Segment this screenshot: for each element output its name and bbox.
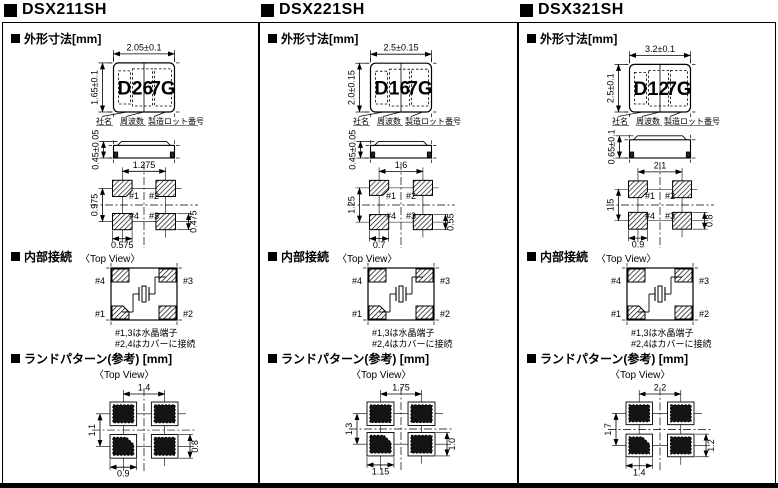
- side-terminal: [631, 152, 634, 158]
- thickness-dimension-label: 0.65±0.1: [607, 129, 617, 164]
- pad-pitch-x-label: 1.275: [133, 160, 156, 170]
- land-pitch-x-label: 1.4: [138, 383, 151, 393]
- panel-dsx221sh: DSX221SH D167G2.5±0.152.0±0.15社名周波数製造ロット…: [259, 0, 518, 488]
- land-pad: [154, 405, 175, 423]
- section-square-bullet-icon: [11, 252, 20, 261]
- internal-pad: [112, 269, 129, 282]
- pad-width-label: 0.7: [373, 240, 386, 250]
- pad-height-label: 0.475: [189, 210, 199, 233]
- pin-label: #3: [440, 276, 450, 286]
- marking-text: 7G: [666, 79, 691, 100]
- marking-legend-label: 製造ロット番号: [405, 116, 461, 126]
- terminal-pad: [413, 180, 432, 195]
- leader-line: [383, 112, 401, 117]
- pin-label: #1: [95, 309, 105, 319]
- section-square-bullet-icon: [11, 34, 20, 43]
- land-height-label: 0.8: [190, 440, 200, 453]
- marking-legend-label: 周波数: [636, 116, 660, 126]
- section-header-text: 内部接続: [281, 248, 329, 265]
- width-dimension-label: 2.05±0.1: [127, 42, 162, 52]
- leader-line: [102, 112, 127, 117]
- marking-legend-label: 社名: [612, 116, 628, 126]
- section-header-text: 外形寸法[mm]: [540, 30, 617, 47]
- terminal-pad: [673, 181, 692, 198]
- marking-text: 7G: [407, 79, 432, 100]
- terminal-pad: [673, 212, 692, 229]
- section-square-bullet-icon: [527, 34, 536, 43]
- section-header-outline: 外形寸法[mm]: [268, 30, 358, 47]
- pin-label: #2: [406, 191, 416, 201]
- pad-pitch-x-label: 2.1: [654, 160, 667, 170]
- section-square-bullet-icon: [527, 354, 536, 363]
- side-lid: [118, 141, 171, 145]
- pin-label: #2: [149, 191, 159, 201]
- section-header-land: ランドパターン(参考) [mm]: [268, 350, 429, 367]
- section-header-outline: 外形寸法[mm]: [527, 30, 617, 47]
- internal-pad: [628, 269, 645, 282]
- marking-legend-label: 社名: [353, 116, 369, 126]
- side-lid: [375, 141, 428, 145]
- marking-legend-label: 周波数: [120, 116, 144, 126]
- bottom-divider-bar: [0, 483, 778, 488]
- thickness-dimension-label: 0.45±0.05: [91, 130, 101, 170]
- leader-line: [618, 112, 643, 117]
- side-lid: [634, 136, 687, 140]
- crystal-symbol-body: [142, 286, 146, 302]
- side-terminal: [427, 152, 430, 158]
- side-body: [371, 145, 432, 158]
- section-header-internal: 内部接続: [11, 248, 72, 265]
- pin-label: #1: [611, 309, 621, 319]
- section-header-land: ランドパターン(参考) [mm]: [527, 350, 688, 367]
- pin-label: #1: [352, 309, 362, 319]
- internal-pad: [675, 269, 692, 282]
- land-pitch-x-label: 1.75: [392, 383, 410, 393]
- marking-legend-label: 周波数: [377, 116, 401, 126]
- side-terminal: [115, 152, 118, 158]
- top-view-label: 〈Top View〉: [337, 250, 397, 265]
- land-pitch-y-label: 1.7: [603, 423, 613, 436]
- pin-label: #1: [386, 191, 396, 201]
- pad-width-label: 0.9: [632, 240, 645, 250]
- pin-label: #4: [352, 276, 362, 286]
- section-header-text: ランドパターン(参考) [mm]: [281, 350, 429, 367]
- side-terminal: [372, 152, 375, 158]
- pin-label: #4: [95, 276, 105, 286]
- internal-pad: [416, 269, 433, 282]
- land-width-label: 0.9: [117, 469, 130, 479]
- section-square-bullet-icon: [268, 252, 277, 261]
- land-height-label: 1.0: [447, 438, 457, 451]
- pad-pitch-y-label: 1.25: [347, 196, 357, 214]
- land-pad: [671, 437, 691, 454]
- leader-line: [359, 112, 384, 117]
- pin-label: #2: [699, 309, 709, 319]
- crystal-symbol-body: [399, 286, 403, 302]
- land-pad: [671, 405, 691, 422]
- section-header-internal: 内部接続: [527, 248, 588, 265]
- internal-note-2: #2,4はカバーに接続: [372, 337, 453, 350]
- section-header-land: ランドパターン(参考) [mm]: [11, 350, 172, 367]
- section-header-outline: 外形寸法[mm]: [11, 30, 101, 47]
- thickness-dimension-label: 0.45±0.05: [348, 130, 358, 170]
- pad-height-label: 0.8: [705, 214, 715, 227]
- land-height-label: 1.2: [706, 439, 716, 452]
- pin-label: #4: [645, 211, 655, 221]
- internal-pad: [369, 269, 386, 282]
- section-square-bullet-icon: [11, 354, 20, 363]
- land-pad: [411, 435, 432, 452]
- pad-pitch-y-label: 1.5: [606, 199, 616, 212]
- marking-text: 7G: [150, 78, 175, 99]
- top-view-label: 〈Top View〉: [596, 250, 656, 265]
- internal-pad: [416, 306, 433, 319]
- leader-line: [126, 112, 144, 117]
- pin-label: #3: [665, 211, 675, 221]
- section-square-bullet-icon: [268, 354, 277, 363]
- land-pad: [629, 405, 649, 422]
- terminal-pad: [413, 215, 432, 230]
- marking-text: D: [375, 79, 389, 100]
- pad-pitch-y-label: 0.975: [90, 194, 100, 217]
- internal-pad: [159, 306, 176, 319]
- pin-label: #1: [129, 191, 139, 201]
- top-view-label: 〈Top View〉: [80, 250, 140, 265]
- section-header-text: 内部接続: [540, 248, 588, 265]
- top-view-label: 〈Top View〉: [351, 366, 411, 381]
- top-view-label: 〈Top View〉: [610, 366, 670, 381]
- pad-width-label: 0.575: [111, 240, 134, 250]
- section-header-text: ランドパターン(参考) [mm]: [24, 350, 172, 367]
- pin-label: #3: [406, 211, 416, 221]
- marking-legend-label: 社名: [96, 116, 112, 126]
- internal-pad: [159, 269, 176, 282]
- land-pad: [370, 405, 391, 422]
- panel-dsx321sh: DSX321SH D127G3.2±0.12.5±0.1社名周波数製造ロット番号…: [518, 0, 776, 488]
- land-pitch-x-label: 2.2: [654, 383, 667, 393]
- leader-line: [154, 112, 166, 117]
- pin-label: #3: [149, 211, 159, 221]
- side-terminal: [686, 152, 689, 158]
- marking-text: D: [118, 78, 132, 99]
- internal-note-2: #2,4はカバーに接続: [115, 337, 196, 350]
- land-pad: [154, 438, 175, 456]
- section-header-text: 外形寸法[mm]: [281, 30, 358, 47]
- pad-height-label: 0.55: [446, 213, 456, 231]
- package-drawings: D267G2.05±0.11.65±0.1社名周波数製造ロット番号0.45±0.…: [2, 0, 259, 488]
- pin-label: #2: [183, 309, 193, 319]
- pin-label: #4: [386, 211, 396, 221]
- marking-legend-label: 製造ロット番号: [148, 116, 204, 126]
- side-body: [114, 145, 175, 158]
- side-terminal: [170, 152, 173, 158]
- crystal-symbol-body: [658, 286, 662, 302]
- package-drawings: D167G2.5±0.152.0±0.15社名周波数製造ロット番号0.45±0.…: [259, 0, 518, 488]
- panel-dsx211sh: DSX211SH D267G2.05±0.11.65±0.1社名周波数製造ロット…: [2, 0, 259, 488]
- leader-line: [670, 112, 682, 117]
- pin-label: #3: [183, 276, 193, 286]
- width-dimension-label: 3.2±0.1: [645, 44, 675, 54]
- land-pitch-y-label: 1.3: [344, 423, 354, 436]
- section-header-text: ランドパターン(参考) [mm]: [540, 350, 688, 367]
- leader-line: [411, 112, 423, 117]
- pin-label: #2: [440, 309, 450, 319]
- section-header-internal: 内部接続: [268, 248, 329, 265]
- pin-label: #2: [665, 191, 675, 201]
- section-square-bullet-icon: [268, 34, 277, 43]
- pin-label: #4: [129, 211, 139, 221]
- land-width-label: 1.4: [633, 467, 646, 477]
- internal-note-2: #2,4はカバーに接続: [631, 337, 712, 350]
- height-dimension-label: 1.65±0.1: [90, 70, 100, 105]
- top-view-label: 〈Top View〉: [94, 366, 154, 381]
- land-width-label: 1.15: [372, 466, 390, 476]
- section-header-text: 外形寸法[mm]: [24, 30, 101, 47]
- section-header-text: 内部接続: [24, 248, 72, 265]
- height-dimension-label: 2.0±0.15: [347, 70, 357, 105]
- pin-label: #3: [699, 276, 709, 286]
- height-dimension-label: 2.5±0.1: [606, 73, 616, 103]
- package-drawings: D127G3.2±0.12.5±0.1社名周波数製造ロット番号0.65±0.12…: [518, 0, 776, 488]
- land-pitch-y-label: 1.1: [87, 424, 97, 437]
- leader-line: [642, 112, 660, 117]
- land-pad: [411, 405, 432, 422]
- internal-pad: [675, 306, 692, 319]
- side-body: [630, 140, 691, 158]
- pin-label: #4: [611, 276, 621, 286]
- marking-text: D: [634, 79, 648, 100]
- section-square-bullet-icon: [527, 252, 536, 261]
- pin-label: #1: [645, 191, 655, 201]
- land-pad: [113, 405, 134, 423]
- pad-pitch-x-label: 1.6: [395, 160, 408, 170]
- marking-legend-label: 製造ロット番号: [664, 116, 720, 126]
- width-dimension-label: 2.5±0.15: [384, 43, 419, 53]
